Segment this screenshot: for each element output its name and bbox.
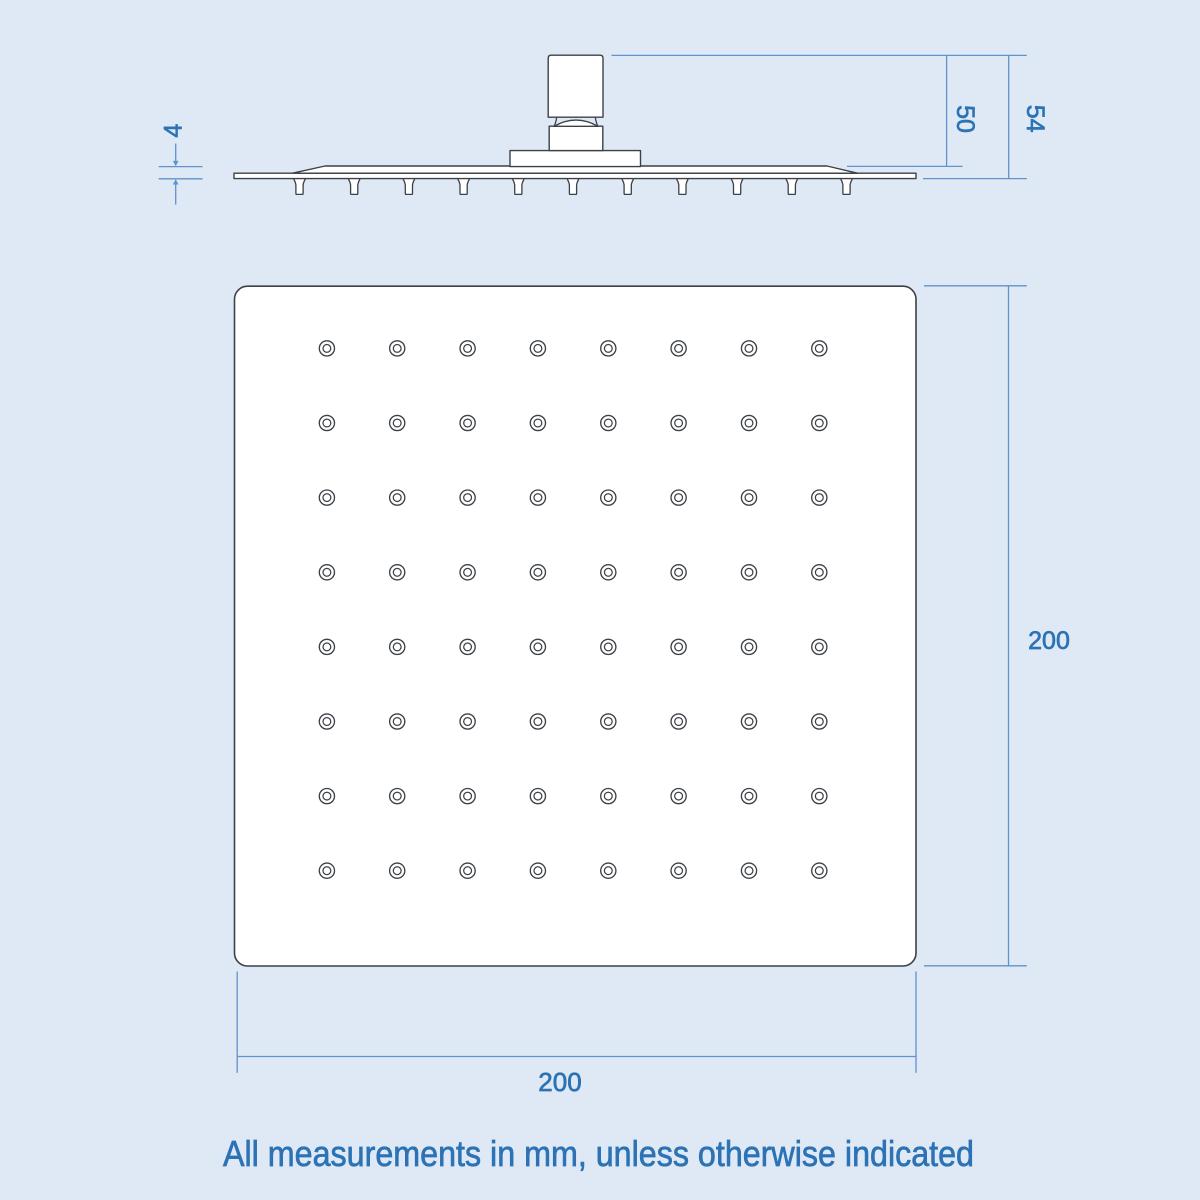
svg-text:200: 200 xyxy=(538,1067,581,1097)
svg-text:54: 54 xyxy=(1021,105,1049,133)
svg-text:4: 4 xyxy=(159,124,187,138)
svg-text:All measurements in mm, unless: All measurements in mm, unless otherwise… xyxy=(223,1133,974,1174)
svg-text:50: 50 xyxy=(951,105,979,133)
svg-text:200: 200 xyxy=(1028,627,1070,655)
